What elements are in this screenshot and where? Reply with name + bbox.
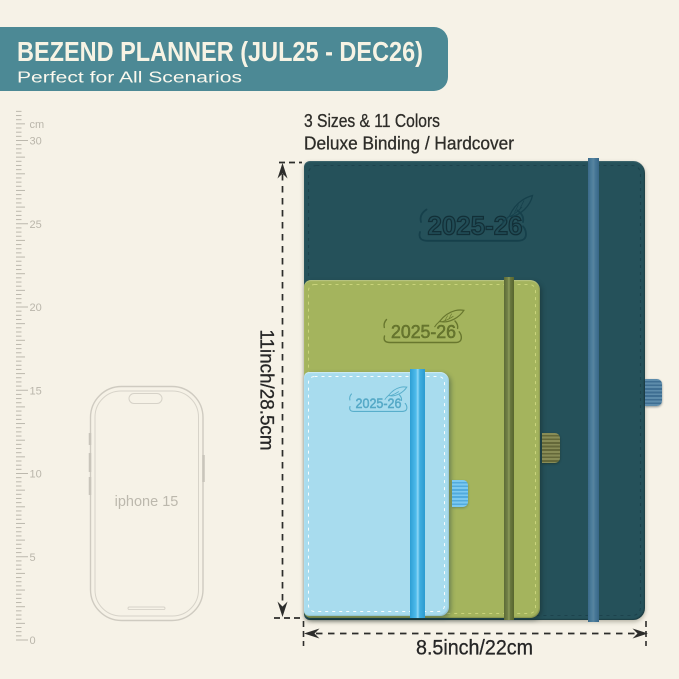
- svg-text:cm: cm: [30, 119, 45, 131]
- svg-text:0: 0: [30, 635, 36, 647]
- svg-text:2025-26: 2025-26: [428, 211, 523, 241]
- svg-text:2025-26: 2025-26: [355, 395, 401, 411]
- svg-text:2025-26: 2025-26: [391, 322, 456, 342]
- svg-text:iphone 15: iphone 15: [115, 494, 179, 510]
- svg-text:Deluxe Binding / Hardcover: Deluxe Binding / Hardcover: [304, 134, 514, 154]
- svg-text:Perfect for All Scenarios: Perfect for All Scenarios: [17, 70, 242, 87]
- svg-text:10: 10: [30, 469, 42, 481]
- svg-text:30: 30: [30, 136, 42, 148]
- svg-text:20: 20: [30, 302, 42, 314]
- svg-text:11inch/28.5cm: 11inch/28.5cm: [256, 330, 277, 451]
- svg-text:25: 25: [30, 219, 42, 231]
- svg-text:3 Sizes & 11 Colors: 3 Sizes & 11 Colors: [304, 111, 440, 131]
- svg-text:5: 5: [30, 552, 36, 564]
- svg-text:BEZEND PLANNER (JUL25 - DEC26): BEZEND PLANNER (JUL25 - DEC26): [17, 36, 423, 67]
- svg-text:8.5inch/22cm: 8.5inch/22cm: [416, 636, 533, 660]
- svg-text:15: 15: [30, 385, 42, 397]
